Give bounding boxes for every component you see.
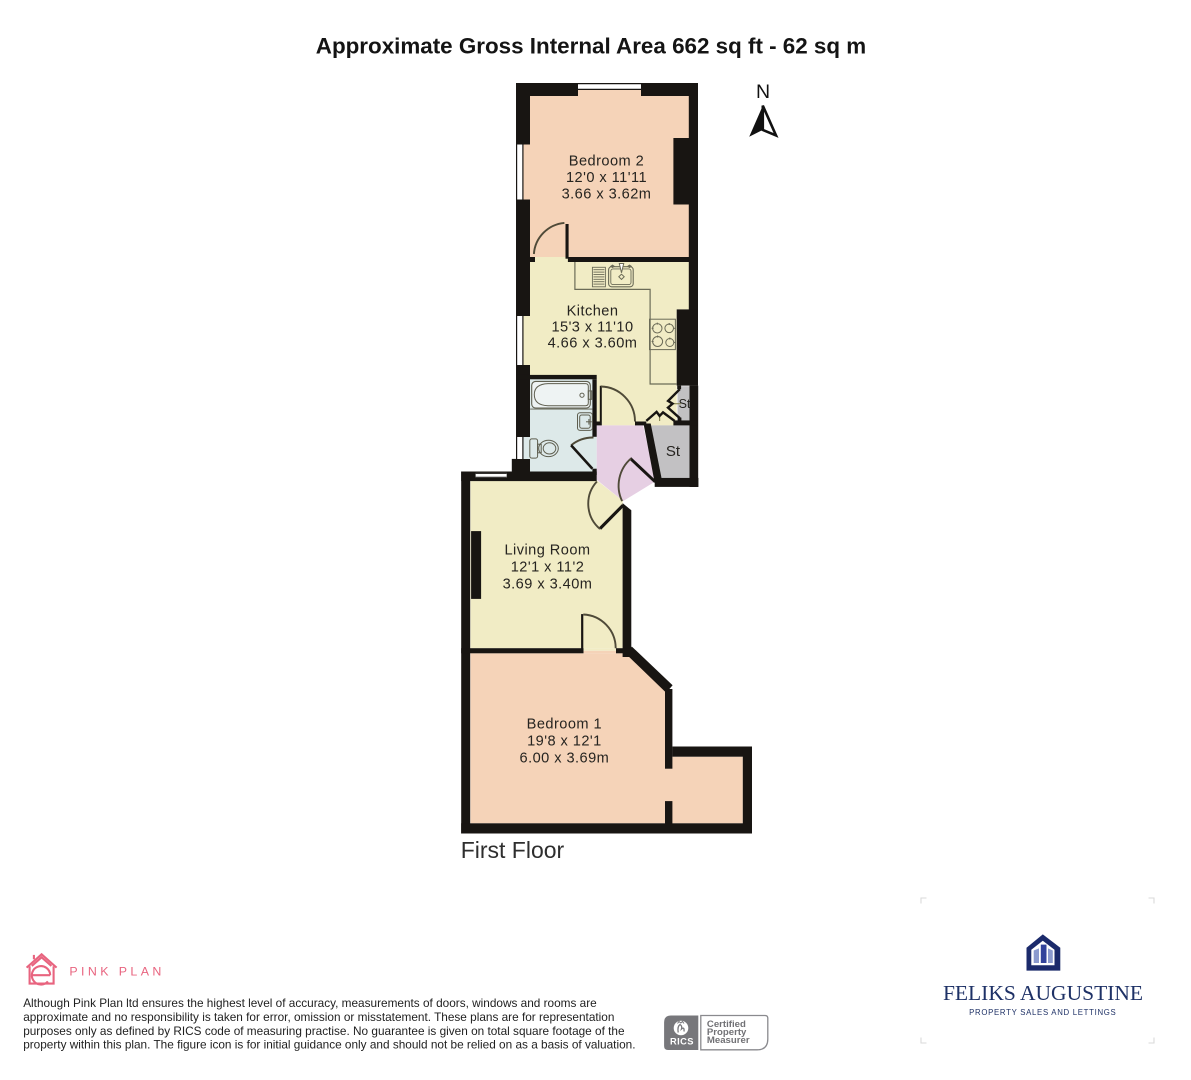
svg-text:St: St <box>679 397 691 411</box>
svg-text:N: N <box>756 81 770 103</box>
svg-text:PINK PLAN: PINK PLAN <box>69 964 164 978</box>
svg-text:12'0 x 11'11: 12'0 x 11'11 <box>566 170 647 186</box>
svg-text:3.69 x 3.40m: 3.69 x 3.40m <box>503 577 593 593</box>
svg-text:First Floor: First Floor <box>461 837 565 863</box>
svg-text:6.00 x 3.69m: 6.00 x 3.69m <box>520 751 610 767</box>
svg-text:FELIKS AUGUSTINE: FELIKS AUGUSTINE <box>943 981 1143 1005</box>
svg-text:Approximate Gross Internal Are: Approximate Gross Internal Area 662 sq f… <box>316 33 866 58</box>
svg-text:12'1 x 11'2: 12'1 x 11'2 <box>511 559 585 575</box>
svg-text:4.66 x 3.60m: 4.66 x 3.60m <box>548 336 638 352</box>
svg-text:3.66 x 3.62m: 3.66 x 3.62m <box>562 187 652 203</box>
svg-text:PROPERTY SALES AND LETTINGS: PROPERTY SALES AND LETTINGS <box>969 1008 1116 1017</box>
svg-text:purposes only as defined by RI: purposes only as defined by RICS code of… <box>23 1024 625 1038</box>
svg-text:Measurer: Measurer <box>707 1035 750 1046</box>
svg-text:19'8 x 12'1: 19'8 x 12'1 <box>527 733 602 749</box>
svg-text:RICS: RICS <box>670 1037 694 1047</box>
svg-text:approximate and no responsibil: approximate and no responsibility is tak… <box>23 1010 614 1024</box>
svg-text:Although Pink Plan ltd ensures: Although Pink Plan ltd ensures the highe… <box>23 996 597 1010</box>
svg-text:Living Room: Living Room <box>504 542 590 558</box>
svg-text:Kitchen: Kitchen <box>567 303 619 319</box>
svg-text:Bedroom 1: Bedroom 1 <box>527 717 602 733</box>
svg-text:St: St <box>666 443 681 460</box>
svg-text:Bedroom 2: Bedroom 2 <box>569 154 644 170</box>
svg-text:property within this plan. The: property within this plan. The figure ic… <box>23 1038 635 1052</box>
svg-text:15'3 x 11'10: 15'3 x 11'10 <box>551 320 633 336</box>
